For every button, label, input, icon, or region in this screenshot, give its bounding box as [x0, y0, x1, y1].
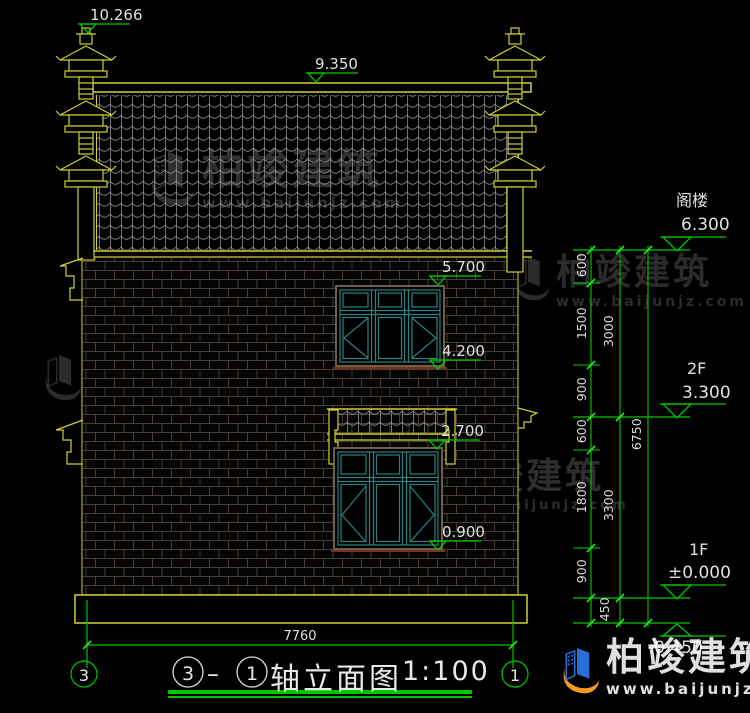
drawing-scale: 1:100 — [402, 656, 490, 687]
marker-upper-window-sill: 4.200 — [442, 344, 485, 359]
level-value-attic: 6.300 — [681, 217, 730, 234]
dim-6750: 6750 — [631, 411, 644, 457]
lower-window — [331, 448, 445, 551]
level-value-1f: ±0.000 — [668, 565, 731, 582]
marker-upper-window-top: 5.700 — [442, 260, 485, 275]
dim-1500: 1500 — [576, 300, 589, 346]
dim-600b: 600 — [576, 408, 589, 454]
dim-900a: 900 — [576, 366, 589, 412]
level-label-2f: 2F — [687, 361, 706, 377]
plinth — [75, 595, 527, 623]
dim-1800: 1800 — [576, 474, 589, 520]
marker-ridge: 9.350 — [315, 57, 358, 72]
level-value-2f: 3.300 — [682, 385, 731, 402]
level-label-1f: 1F — [689, 542, 708, 558]
title-axis-to: 1 — [237, 663, 267, 685]
marker-canopy: 2.700 — [441, 424, 484, 439]
upper-window — [333, 286, 447, 368]
cad-elevation-drawing: 柏竣建筑 www.baijunjz.com 柏竣建筑 www.baijunjz.… — [0, 0, 750, 713]
axis-bubble-right-number: 1 — [502, 666, 528, 685]
dim-600a: 600 — [576, 242, 589, 288]
title-dash: – — [207, 660, 219, 688]
marker-lower-window-sill: 0.900 — [442, 525, 485, 540]
drawing-title: 轴立面图 — [270, 654, 402, 698]
dim-3300: 3300 — [603, 482, 616, 528]
marker-roof-finial: 10.266 — [90, 8, 143, 23]
axis-bubble-left-number: 3 — [71, 666, 97, 685]
level-value-base: -0.450 — [648, 640, 703, 657]
dim-overall-width: 7760 — [270, 630, 330, 643]
dim-450: 450 — [599, 586, 612, 632]
level-label-attic: 阁楼 — [676, 193, 708, 209]
title-axis-from: 3 — [173, 663, 203, 685]
dim-900b: 900 — [576, 548, 589, 594]
roof — [83, 83, 532, 257]
elevation-linework — [0, 0, 750, 713]
dim-3000: 3000 — [603, 308, 616, 354]
